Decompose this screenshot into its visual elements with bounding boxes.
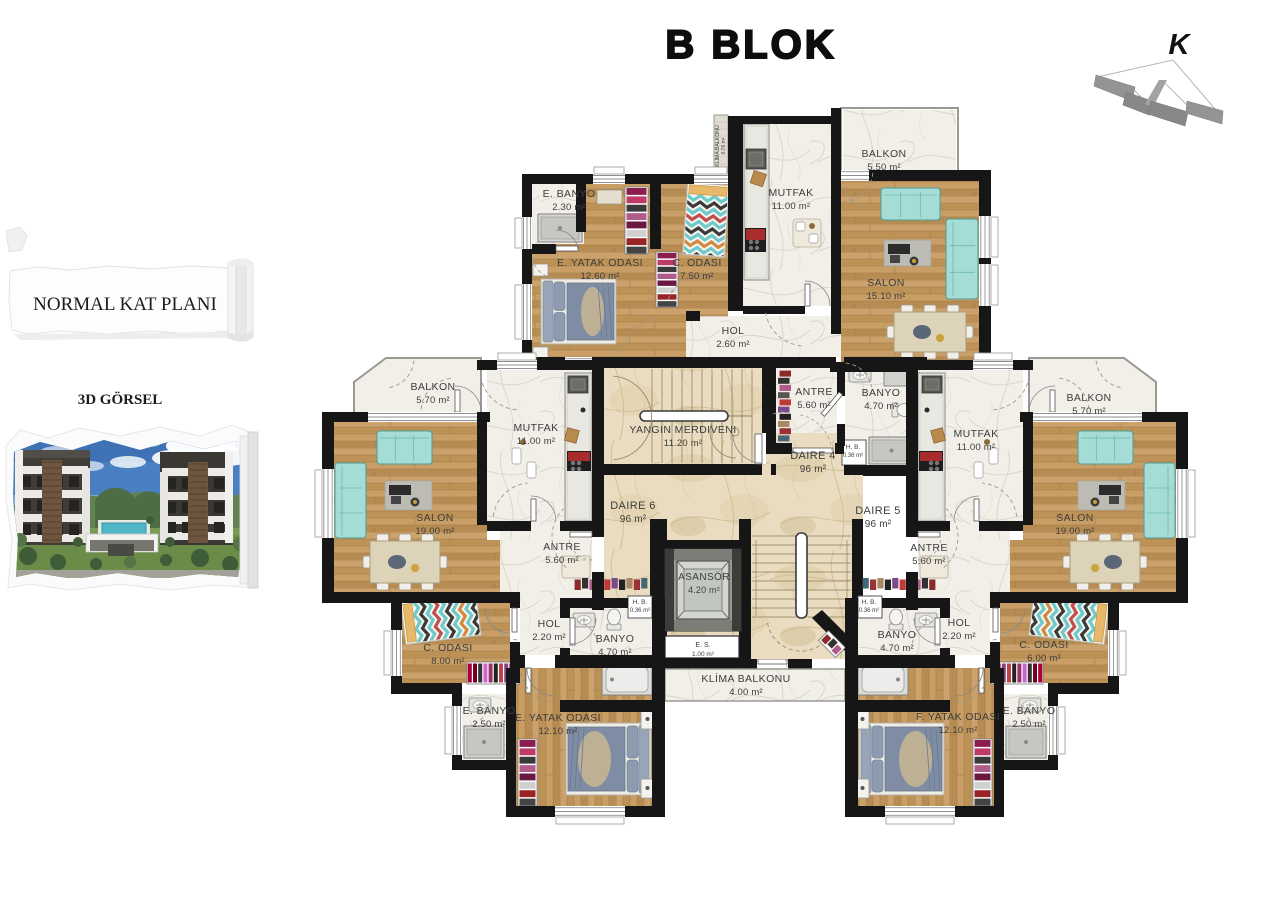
svg-text:SALON: SALON: [416, 512, 454, 524]
svg-text:BALKON: BALKON: [1067, 392, 1112, 404]
svg-text:C. ODASI: C. ODASI: [672, 257, 721, 269]
svg-text:C. ODASI: C. ODASI: [423, 642, 472, 654]
svg-text:YANGIN MERDIVENI: YANGIN MERDIVENI: [629, 424, 736, 436]
svg-text:11.00 m²: 11.00 m²: [517, 436, 555, 447]
svg-text:11.20 m²: 11.20 m²: [664, 438, 702, 449]
svg-text:0.76 m²: 0.76 m²: [721, 137, 727, 154]
svg-text:4.20 m²: 4.20 m²: [688, 585, 720, 595]
svg-text:4.70 m²: 4.70 m²: [864, 401, 898, 412]
svg-text:4.70 m²: 4.70 m²: [598, 647, 632, 658]
svg-text:H. B.: H. B.: [862, 599, 877, 606]
svg-text:11.00 m²: 11.00 m²: [957, 442, 995, 453]
svg-text:KLİMA BALKONU: KLİMA BALKONU: [714, 125, 721, 167]
svg-text:2.50 m²: 2.50 m²: [472, 719, 506, 730]
svg-text:DAIRE 4: DAIRE 4: [790, 450, 836, 462]
svg-text:2.50 m²: 2.50 m²: [1012, 719, 1046, 730]
svg-text:8.00 m²: 8.00 m²: [431, 656, 465, 667]
svg-text:SALON: SALON: [867, 277, 905, 289]
svg-text:12.60 m²: 12.60 m²: [580, 271, 619, 282]
svg-text:5.70 m²: 5.70 m²: [1072, 406, 1106, 417]
svg-text:0.36 m²: 0.36 m²: [843, 453, 863, 459]
svg-text:E. BANYO: E. BANYO: [1003, 705, 1056, 717]
svg-text:E. YATAK ODASI: E. YATAK ODASI: [515, 712, 601, 724]
svg-text:H. B.: H. B.: [633, 599, 648, 606]
svg-text:SALON: SALON: [1056, 512, 1094, 524]
svg-text:BANYO: BANYO: [862, 387, 901, 399]
svg-text:2.20 m²: 2.20 m²: [942, 631, 976, 642]
svg-text:E. YATAK ODASI: E. YATAK ODASI: [557, 257, 643, 269]
svg-text:5.50 m²: 5.50 m²: [867, 162, 901, 173]
svg-text:19.00 m²: 19.00 m²: [1055, 526, 1094, 537]
svg-text:E. BANYO: E. BANYO: [463, 705, 516, 717]
svg-text:96 m²: 96 m²: [620, 514, 647, 525]
svg-text:E. BANYO: E. BANYO: [543, 188, 596, 200]
svg-text:B BLOK: B BLOK: [665, 23, 836, 67]
svg-text:3D GÖRSEL: 3D GÖRSEL: [78, 391, 163, 408]
svg-text:E. S.: E. S.: [695, 642, 710, 649]
svg-text:KLİMA BALKONU: KLİMA BALKONU: [701, 672, 790, 685]
svg-text:12.10 m²: 12.10 m²: [938, 725, 977, 736]
svg-text:MUTFAK: MUTFAK: [769, 187, 814, 199]
svg-text:HOL: HOL: [538, 618, 561, 630]
svg-text:HOL: HOL: [722, 325, 745, 337]
svg-text:6.00 m²: 6.00 m²: [1027, 653, 1061, 664]
svg-text:12.10 m²: 12.10 m²: [538, 726, 577, 737]
svg-text:MUTFAK: MUTFAK: [514, 422, 559, 434]
svg-text:0.36 m²: 0.36 m²: [859, 608, 879, 614]
svg-text:19.00 m²: 19.00 m²: [415, 526, 454, 537]
svg-text:96 m²: 96 m²: [865, 519, 892, 530]
svg-text:BANYO: BANYO: [596, 633, 635, 645]
svg-text:4.70 m²: 4.70 m²: [880, 643, 914, 654]
svg-text:K: K: [1169, 29, 1192, 61]
svg-text:1.00 m²: 1.00 m²: [692, 651, 715, 658]
svg-text:11.00 m²: 11.00 m²: [772, 201, 810, 212]
svg-text:7.50 m²: 7.50 m²: [680, 271, 714, 282]
svg-text:2.60 m²: 2.60 m²: [716, 339, 750, 350]
svg-text:2.20 m²: 2.20 m²: [532, 632, 566, 643]
svg-text:BALKON: BALKON: [411, 381, 456, 393]
svg-text:HOL: HOL: [948, 617, 971, 629]
svg-text:15.10 m²: 15.10 m²: [866, 291, 905, 302]
svg-text:2.30 m²: 2.30 m²: [552, 202, 586, 213]
svg-text:C. ODASI: C. ODASI: [1019, 639, 1068, 651]
svg-text:DAIRE 5: DAIRE 5: [855, 505, 901, 517]
svg-text:F. YATAK ODASI: F. YATAK ODASI: [916, 711, 1000, 723]
svg-text:NORMAL KAT PLANI: NORMAL KAT PLANI: [33, 294, 217, 315]
svg-text:ANTRE: ANTRE: [910, 542, 948, 554]
svg-text:H. B.: H. B.: [846, 444, 861, 451]
svg-text:5.60 m²: 5.60 m²: [545, 555, 579, 566]
svg-text:5.70 m²: 5.70 m²: [416, 395, 450, 406]
svg-text:ANTRE: ANTRE: [543, 541, 581, 553]
svg-text:4.00 m²: 4.00 m²: [729, 687, 763, 698]
svg-text:5.60 m²: 5.60 m²: [797, 400, 831, 411]
svg-text:BALKON: BALKON: [862, 148, 907, 160]
svg-text:96 m²: 96 m²: [800, 464, 827, 475]
svg-text:ASANSÖR: ASANSÖR: [678, 571, 730, 583]
svg-text:5.60 m²: 5.60 m²: [912, 556, 946, 567]
svg-text:ANTRE: ANTRE: [795, 386, 833, 398]
svg-text:DAIRE 6: DAIRE 6: [610, 500, 656, 512]
svg-text:0.36 m²: 0.36 m²: [630, 608, 650, 614]
svg-text:BANYO: BANYO: [878, 629, 917, 641]
svg-text:MUTFAK: MUTFAK: [954, 428, 999, 440]
